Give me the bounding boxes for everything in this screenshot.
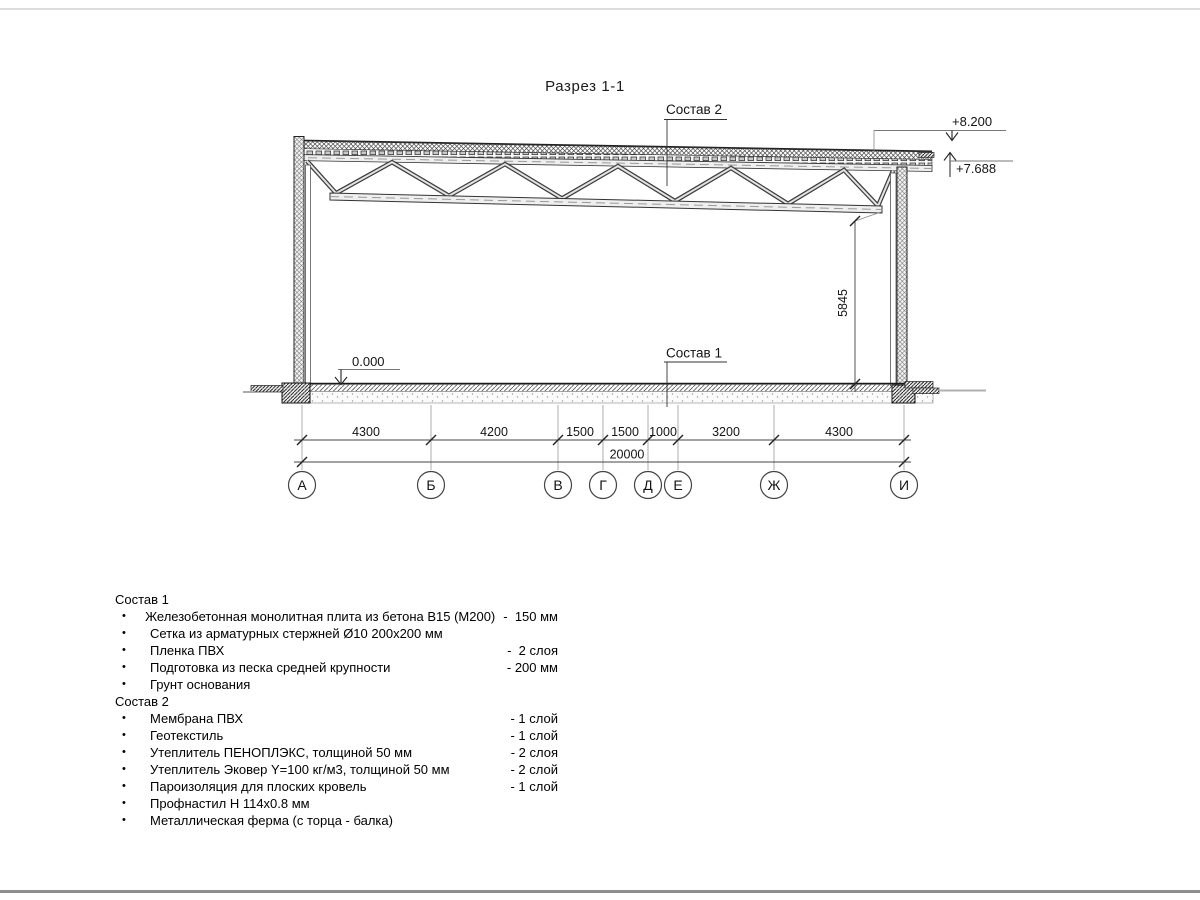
dim-total-value: 20000 [610,448,645,462]
axis-label: И [899,477,909,493]
roof-drip-edge [919,153,934,158]
list-item: • Пленка ПВХ - 2 слоя [115,642,558,659]
composition1-title: Состав 1 [115,591,558,608]
bullet-icon: • [115,625,150,642]
dim-value: 4300 [825,425,853,439]
right-apron-lower [913,388,939,394]
list-item: • Металлическая ферма (с торца - балка) [115,812,558,829]
composition1-label: Состав 1 [666,346,722,361]
bullet-icon: • [115,710,150,727]
list-item: • Мембрана ПВХ - 1 слой [115,710,558,727]
left-wall [294,137,311,391]
right-wall-panel [897,167,907,388]
list-item: • Утеплитель Эковер Y=100 кг/м3, толщино… [115,761,558,778]
dim-value: 4200 [480,425,508,439]
drawing-sheet: Разрез 1-1 [0,0,1200,900]
floor-slab [243,382,986,404]
axis-label: Е [673,477,682,493]
bullet-icon: • [115,676,150,693]
bullet-icon: • [115,642,150,659]
dimension-chain: 4300 4200 1500 1500 1000 3200 4300 20000 [294,405,911,470]
left-footing [282,383,310,403]
list-item: • Железобетонная монолитная плита из бет… [115,608,558,625]
list-item: • Подготовка из песка средней крупности … [115,659,558,676]
axis-label: А [297,477,307,493]
bullet-icon: • [115,795,150,812]
axis-label: Б [426,477,435,493]
axis-label: Ж [768,477,781,493]
right-apron-upper [905,382,933,389]
list-item: • Пароизоляция для плоских кровель - 1 с… [115,778,558,795]
level-mark-floor: 0.000 [335,354,400,385]
axis-bubbles: А Б В Г Д Е Ж И [289,472,918,499]
dim-value: 1000 [649,425,677,439]
axis-label: Г [599,477,607,493]
right-wall [891,167,908,388]
sand-bed-layer [287,392,933,404]
level-mark-roof-top: +8.200 [874,114,1006,152]
axis-label: В [553,477,562,493]
bullet-icon: • [115,761,150,778]
height-dim-value: 5845 [836,289,850,317]
axis-label: Д [643,477,653,493]
dim-value: 3200 [712,425,740,439]
list-item: • Грунт основания [115,676,558,693]
list-item: • Утеплитель ПЕНОПЛЭКС, толщиной 50 мм -… [115,744,558,761]
composition2-label: Состав 2 [666,102,722,117]
level-value-floor: 0.000 [352,354,385,369]
composition2-title: Состав 2 [115,693,558,710]
level-value-eave: +7.688 [956,161,996,176]
concrete-slab-layer [304,385,897,392]
bullet-icon: • [115,659,150,676]
list-item: • Сетка из арматурных стержней Ø10 200x2… [115,625,558,642]
left-apron [251,386,283,393]
materials-legend: Состав 1 • Железобетонная монолитная пли… [115,591,558,829]
left-column-face [306,165,311,385]
right-column-face [891,173,897,386]
bullet-icon: • [115,778,150,795]
dim-value: 4300 [352,425,380,439]
dim-value: 1500 [611,425,639,439]
left-wall-panel [294,137,304,391]
bullet-icon: • [115,608,145,625]
height-dimension: 5845 [836,212,881,392]
list-item: • Геотекстиль - 1 слой [115,727,558,744]
bullet-icon: • [115,812,150,829]
level-mark-eave: +7.688 [944,153,1013,178]
bullet-icon: • [115,744,150,761]
dim-value: 1500 [566,425,594,439]
bullet-icon: • [115,727,150,744]
level-value-roof-top: +8.200 [952,114,992,129]
list-item: • Профнастил Н 114x0.8 мм [115,795,558,812]
